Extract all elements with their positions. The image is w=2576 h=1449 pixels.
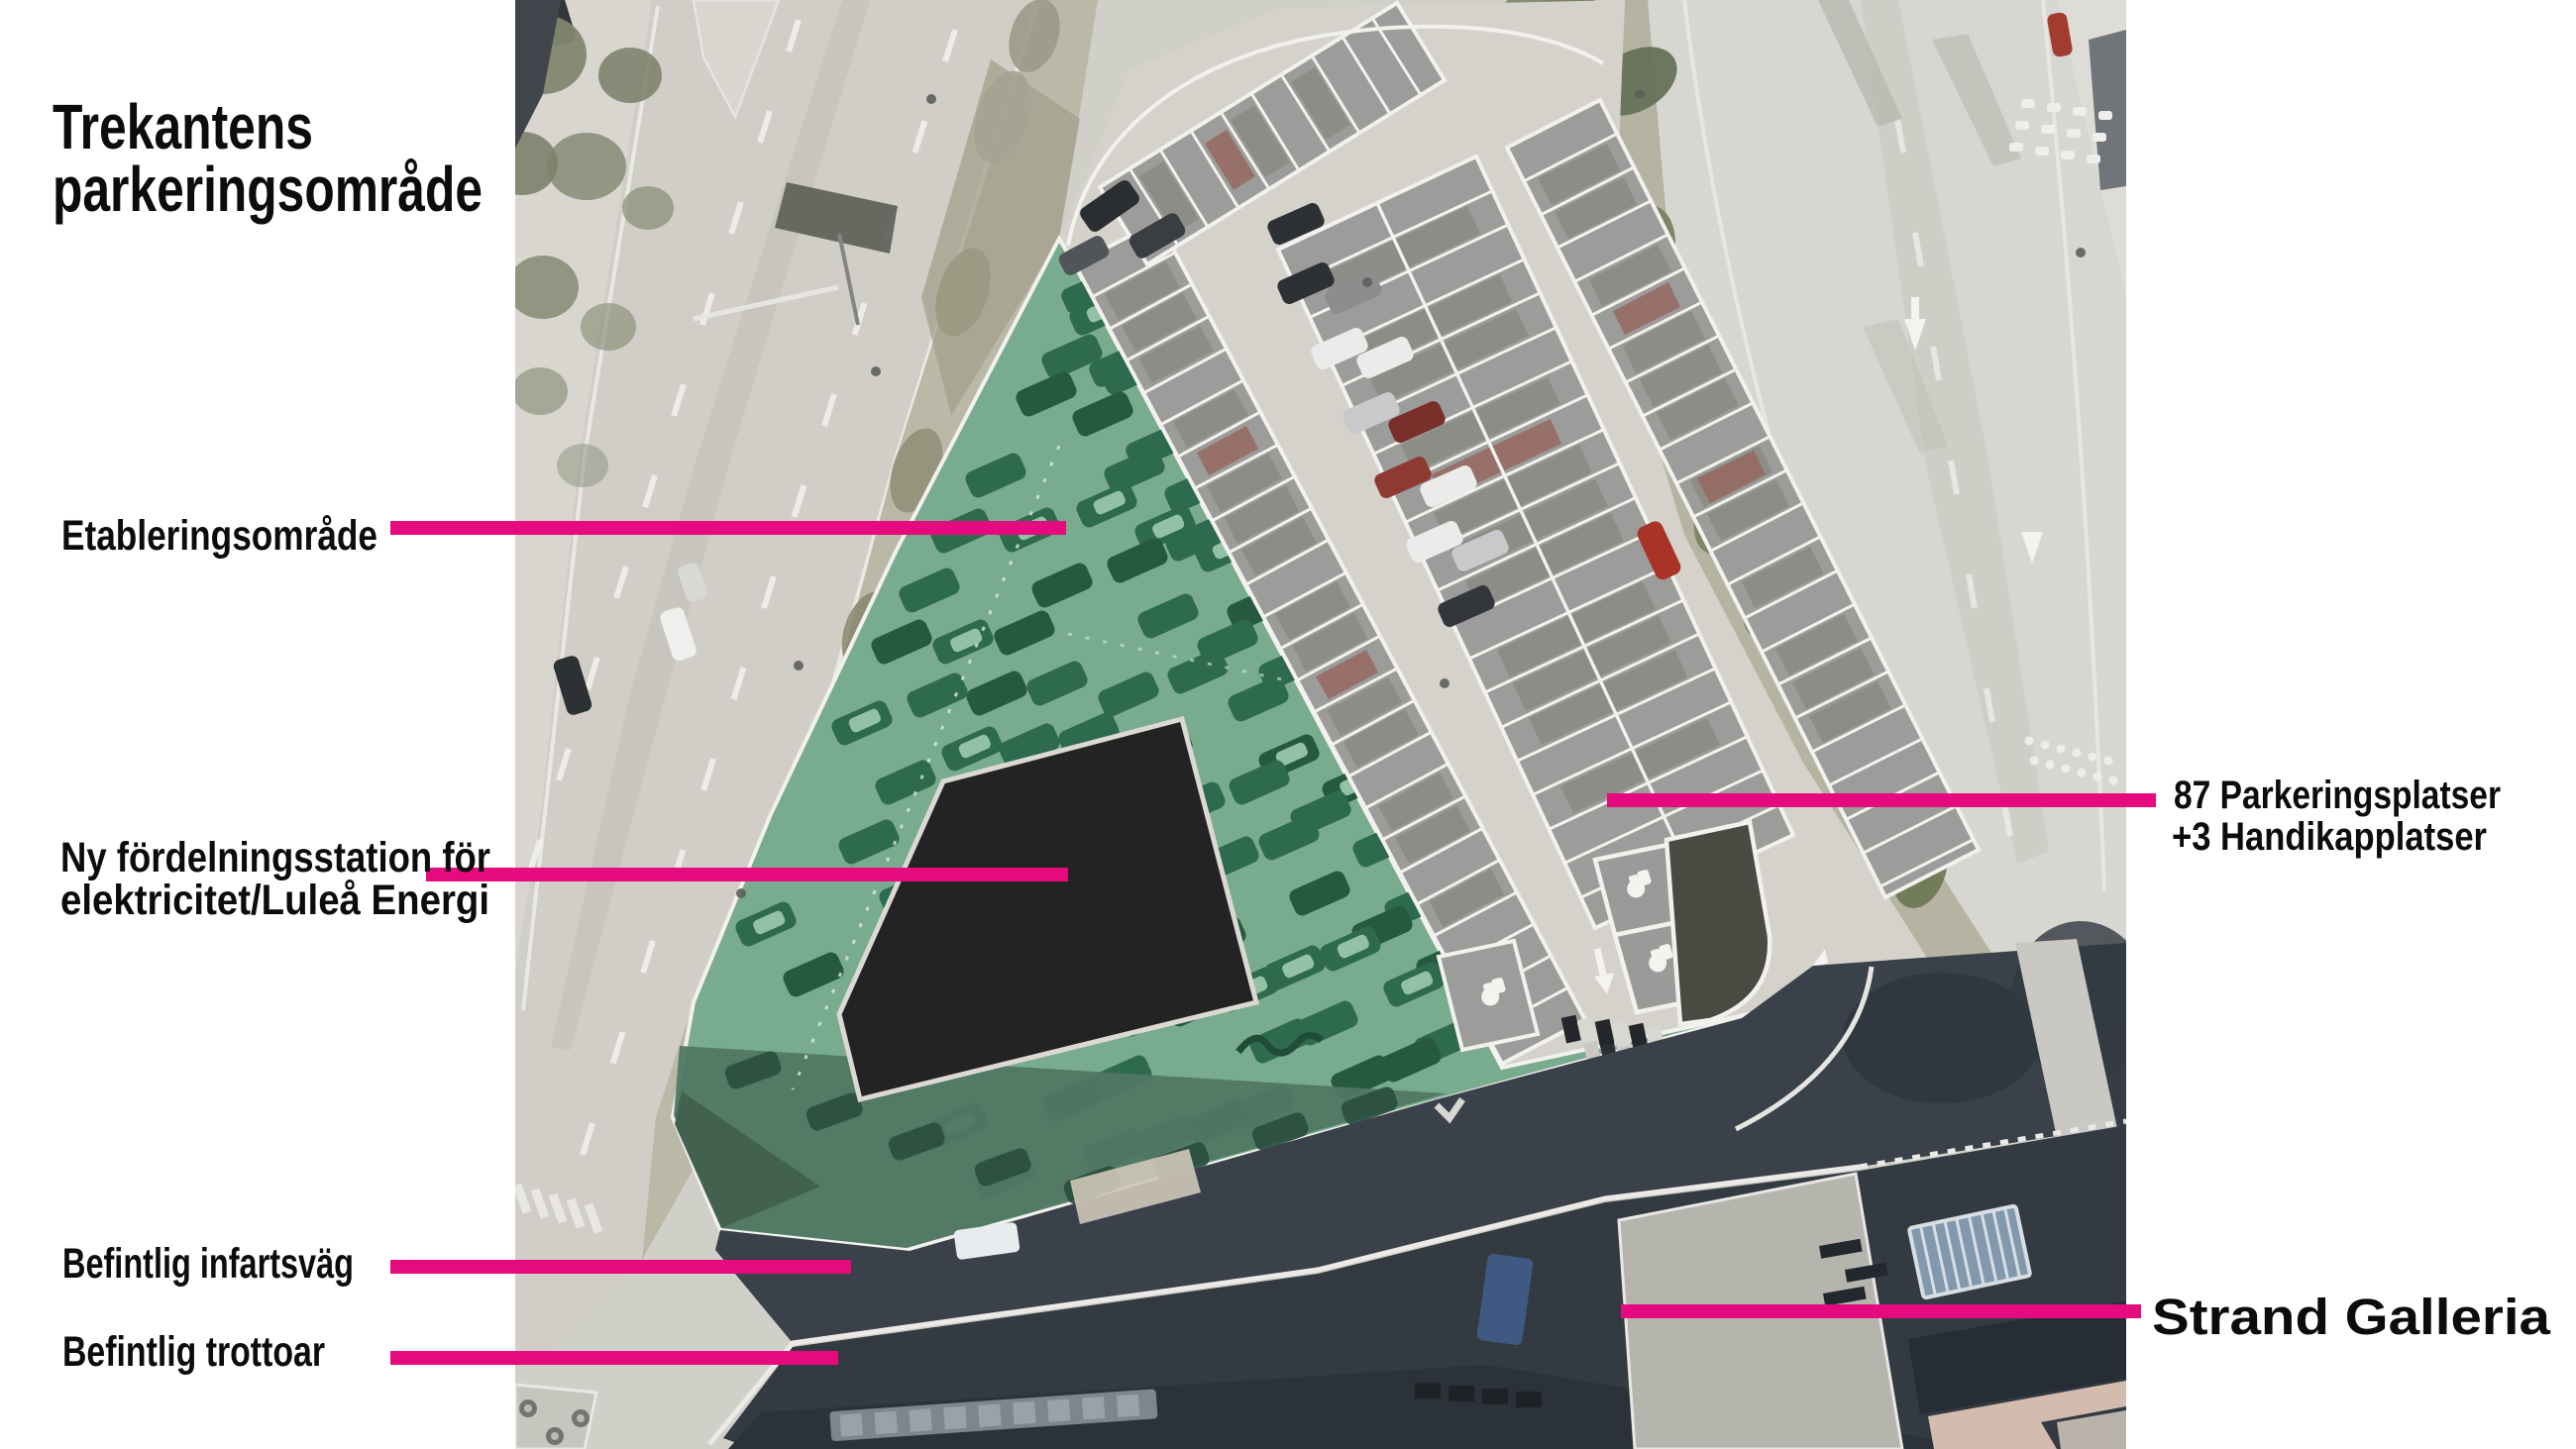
svg-text:Befintlig trottoar: Befintlig trottoar [62, 1328, 325, 1376]
svg-text:elektricitet/Luleå Energi: elektricitet/Luleå Energi [60, 877, 489, 924]
svg-text:87 Parkeringsplatser: 87 Parkeringsplatser [2174, 774, 2501, 817]
svg-text:parkeringsområde: parkeringsområde [53, 154, 483, 225]
svg-text:Strand Galleria: Strand Galleria [2152, 1289, 2551, 1345]
svg-text:Befintlig infartsväg: Befintlig infartsväg [62, 1240, 354, 1288]
svg-text:+3 Handikapplatser: +3 Handikapplatser [2172, 815, 2487, 859]
svg-text:Trekantens: Trekantens [53, 91, 313, 162]
svg-text:Ny fördelningsstation för: Ny fördelningsstation för [60, 834, 490, 881]
svg-text:Etableringsområde: Etableringsområde [61, 512, 377, 560]
